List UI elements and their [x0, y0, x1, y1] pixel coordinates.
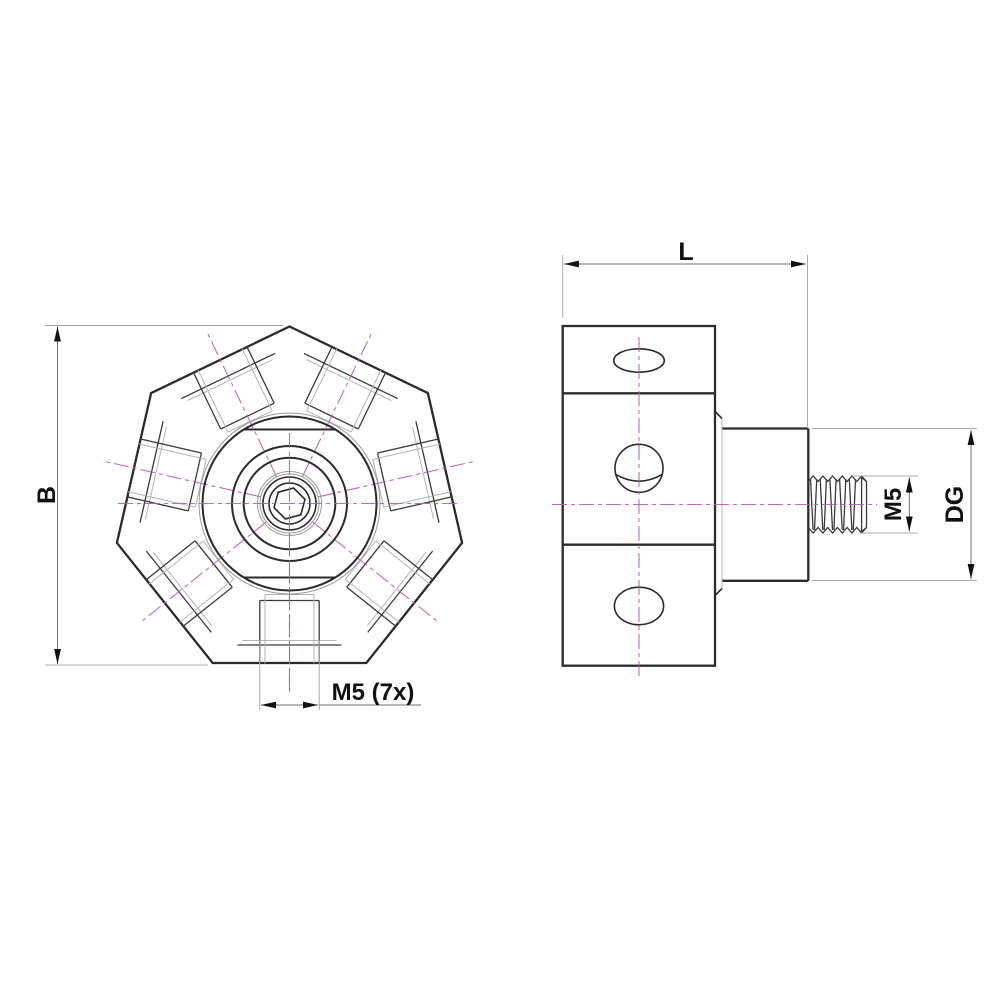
dim-label-b: B: [33, 486, 61, 504]
technical-drawing-svg: B L M5 (7x) M5 DG: [0, 0, 1000, 1000]
dim-label-m5-stud: M5: [880, 488, 907, 521]
dimensions: B L M5 (7x) M5 DG: [33, 238, 977, 710]
boss-chamfer-bottom: [716, 589, 723, 596]
side-view: [552, 326, 877, 677]
drawing-canvas: B L M5 (7x) M5 DG: [0, 0, 1000, 1000]
dim-label-l: L: [678, 238, 693, 266]
boss-chamfer-top: [716, 412, 723, 419]
front-view: [106, 327, 473, 692]
dim-label-m5-holes: M5 (7x): [332, 679, 415, 706]
dim-label-dg: DG: [941, 486, 969, 524]
